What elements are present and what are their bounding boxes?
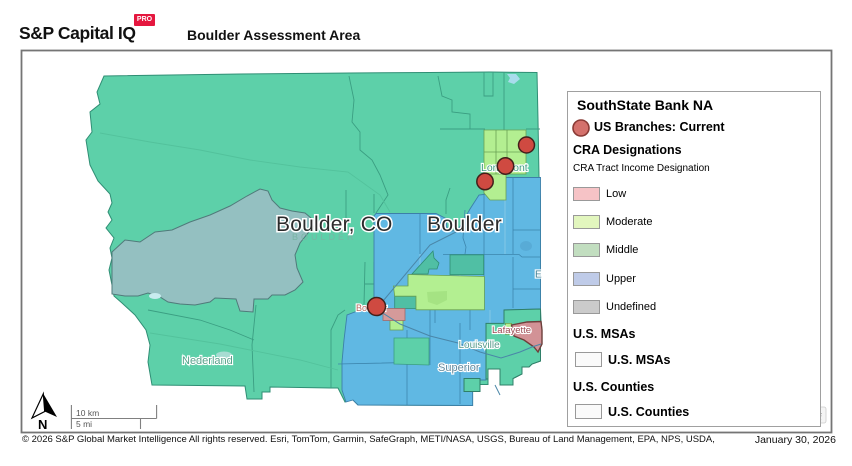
svg-text:E: E xyxy=(535,270,542,281)
svg-text:Lafayette: Lafayette xyxy=(492,325,531,336)
svg-text:Boulder, CO: Boulder, CO xyxy=(276,213,393,236)
svg-text:10 km: 10 km xyxy=(76,408,99,418)
svg-text:Boulder: Boulder xyxy=(427,213,502,236)
svg-text:Superior: Superior xyxy=(438,362,480,374)
svg-text:5 mi: 5 mi xyxy=(76,419,92,429)
svg-text:Louisville: Louisville xyxy=(459,340,501,351)
svg-text:N: N xyxy=(38,417,47,432)
svg-text:Nederland: Nederland xyxy=(182,355,233,367)
